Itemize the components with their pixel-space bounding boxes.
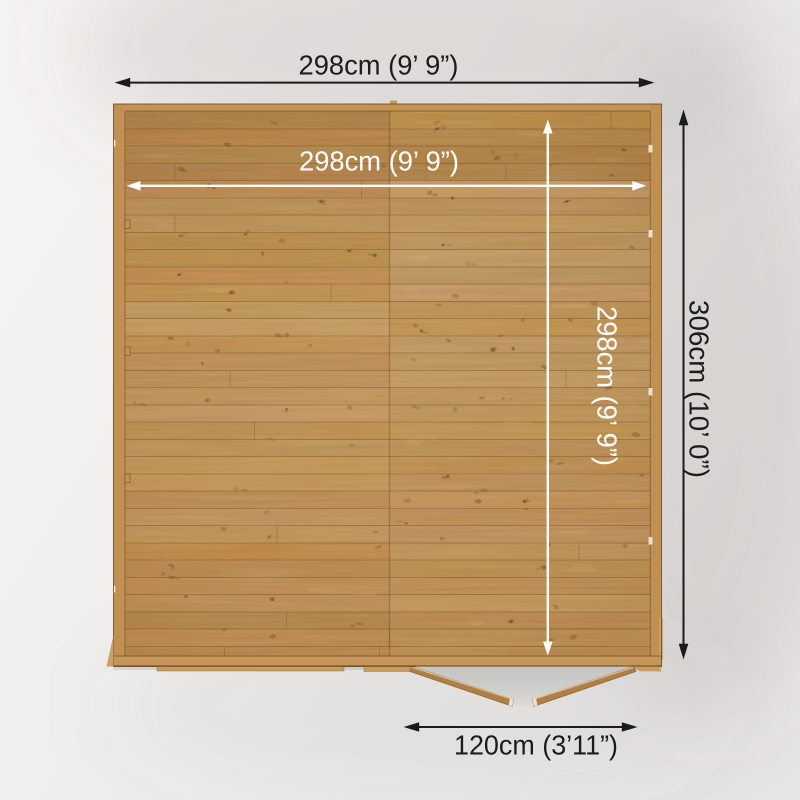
svg-text:298cm (9’ 9”): 298cm (9’ 9”) [299,49,459,80]
svg-text:120cm (3’11”): 120cm (3’11”) [454,729,618,760]
svg-text:298cm (9’ 9”): 298cm (9’ 9”) [592,306,623,466]
svg-text:306cm (10’ 0”): 306cm (10’ 0”) [684,300,715,478]
svg-text:298cm (9’ 9”): 298cm (9’ 9”) [299,146,459,177]
